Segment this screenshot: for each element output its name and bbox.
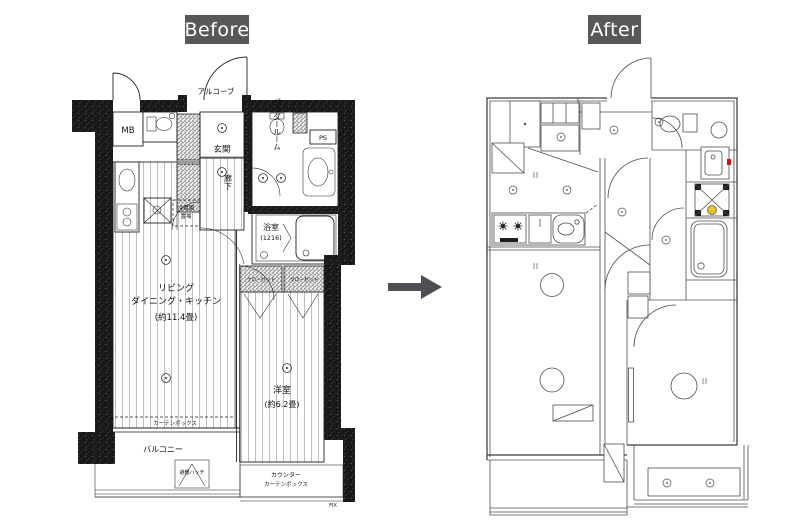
wall-segment: [140, 100, 182, 112]
after-sanitary-column: [650, 147, 737, 300]
counter-curtain-box-label: カーテンボックス: [264, 480, 308, 488]
wall-segment: [72, 100, 95, 132]
drain: [303, 250, 309, 256]
wall-segment: [343, 428, 355, 502]
yellow-accent-circle: [708, 206, 717, 215]
ceiling-light-large: [671, 373, 697, 399]
ceiling-light-symbol: [610, 126, 618, 134]
bathtub: [691, 221, 727, 277]
wall-segment: [244, 112, 252, 212]
fridge-label-2: 置場: [180, 212, 192, 220]
faucet: [329, 170, 333, 174]
ldk-size-label: (約11.4畳): [155, 312, 198, 323]
door-arc: [611, 58, 651, 98]
closet-right-label: クローゼット: [290, 276, 319, 283]
ceiling-light-symbol: [277, 174, 286, 183]
toilet-room: [143, 112, 177, 142]
corridor-floor: [200, 158, 244, 230]
wall-segment: [242, 95, 251, 112]
room-powder: PS パウダールーム: [252, 97, 338, 208]
entrance-area: アルコーブ: [113, 57, 247, 100]
outer-wall-inner: [490, 101, 734, 457]
wall-segment: [251, 100, 355, 112]
sliding-panel: [629, 368, 634, 422]
bathroom-label: 浴室: [263, 222, 279, 232]
balcony-area: バルコニー 避難ハッチ: [95, 432, 240, 497]
dot-mark: [524, 123, 526, 125]
toilet-tank: [683, 114, 697, 132]
before-label: Before: [185, 15, 249, 44]
after-top-rooms: [510, 101, 648, 198]
beam-line: [528, 148, 598, 172]
gas-burner: [514, 222, 523, 231]
wall-segment: [95, 112, 113, 432]
dashed-ref-line: [586, 204, 598, 213]
closet-left-label: クローゼット: [247, 276, 276, 283]
evac-hatch-label: 避難ハッチ: [179, 469, 204, 476]
washbasin-bowl: [308, 158, 328, 186]
before-floors: [113, 158, 324, 462]
before-floor-plan: アルコーブ MB: [72, 57, 355, 509]
after-floor-plan: [487, 58, 748, 515]
corridor-label: 廊下: [224, 173, 233, 191]
diagonal-wall: [605, 232, 650, 265]
wall-segment: [178, 95, 187, 112]
red-accent-mark: [727, 159, 731, 165]
mb-door-arc: [113, 73, 140, 100]
after-bedroom: [627, 272, 737, 445]
western-room-size-label: (約6.2畳): [265, 399, 300, 409]
mb-label: MB: [121, 126, 134, 136]
wall-segment: [248, 206, 340, 214]
floorplan-canvas: アルコーブ MB: [0, 0, 800, 530]
washer-space: [293, 113, 307, 133]
balcony-label: バルコニー: [143, 445, 183, 454]
kitchen-counter: [115, 162, 139, 232]
tiny-annotation: [703, 378, 706, 384]
ceiling-light-symbol: [618, 208, 626, 216]
curtain-box-label: カーテンボックス: [153, 419, 197, 427]
bathtub: [296, 216, 334, 260]
counter-label: カウンター: [271, 471, 301, 479]
shelf-box: [628, 272, 650, 294]
tiny-annotation: [534, 263, 537, 269]
fan-symbol: [711, 122, 727, 138]
hall-door-arc: [608, 158, 648, 198]
fridge-label-1: 冷蔵庫: [178, 204, 195, 212]
transform-arrow: [388, 275, 442, 299]
ldk-label-2: ダイニング・キッチン: [131, 295, 221, 307]
ceiling-light-symbol: [563, 186, 571, 194]
powder-door-arc: [652, 208, 684, 240]
upper-cabinet: [541, 103, 579, 123]
counter-bay-outline: [240, 465, 343, 497]
room-meter-box: MB: [113, 112, 143, 146]
shoe-storage: [177, 114, 200, 160]
shelf-box: [628, 296, 648, 318]
western-room-floor: [240, 292, 324, 462]
entrance-label: 玄関: [213, 144, 230, 155]
grill: [500, 238, 518, 242]
wall-segment: [78, 432, 115, 464]
after-entrance-door: [611, 58, 651, 98]
western-room-label: 洋室: [273, 384, 291, 396]
ceiling-light-symbol: [259, 174, 268, 183]
after-ldk: [487, 143, 600, 421]
counter-cabinet: [541, 125, 579, 151]
outer-wall: [487, 98, 737, 460]
storage-closets-hall: [177, 112, 200, 230]
after-outer-walls: [487, 98, 737, 460]
ps-label: PS: [319, 134, 327, 142]
alcove-label: アルコーブ: [198, 86, 235, 96]
terrace-bench: [648, 468, 740, 496]
before-after-floorplan-comparison: Before After: [0, 0, 800, 530]
after-label: After: [588, 15, 641, 44]
ceiling-light-large: [540, 368, 564, 392]
fix-window-label: FIX: [329, 503, 337, 509]
room-entrance: 玄関: [200, 112, 244, 158]
hall-storage: [177, 164, 200, 212]
powder-door-arc: [252, 168, 280, 196]
ceiling-light-symbol: [218, 124, 227, 133]
wall-segment: [324, 262, 341, 432]
balcony-outline: [95, 432, 240, 497]
wall-segment: [338, 112, 355, 262]
powder-room-label: パウダールーム: [272, 97, 281, 150]
ldk-label-1: リビング: [158, 282, 194, 294]
shoe-cabinet: [582, 103, 600, 129]
folding-door-symbol: [283, 224, 291, 252]
ceiling-light-symbol: [509, 186, 517, 194]
counter-bay-area: カウンター カーテンボックス FIX: [240, 462, 343, 509]
after-toilet-room: [652, 101, 737, 150]
shower-symbol: [261, 252, 268, 259]
gas-burner: [499, 222, 508, 231]
ceiling-light-symbol: [662, 236, 670, 244]
room-toilet: [143, 112, 177, 142]
tiny-annotation: [534, 172, 537, 178]
bathroom-size-label: (1216): [260, 234, 282, 242]
ceiling-light-large: [541, 274, 564, 297]
